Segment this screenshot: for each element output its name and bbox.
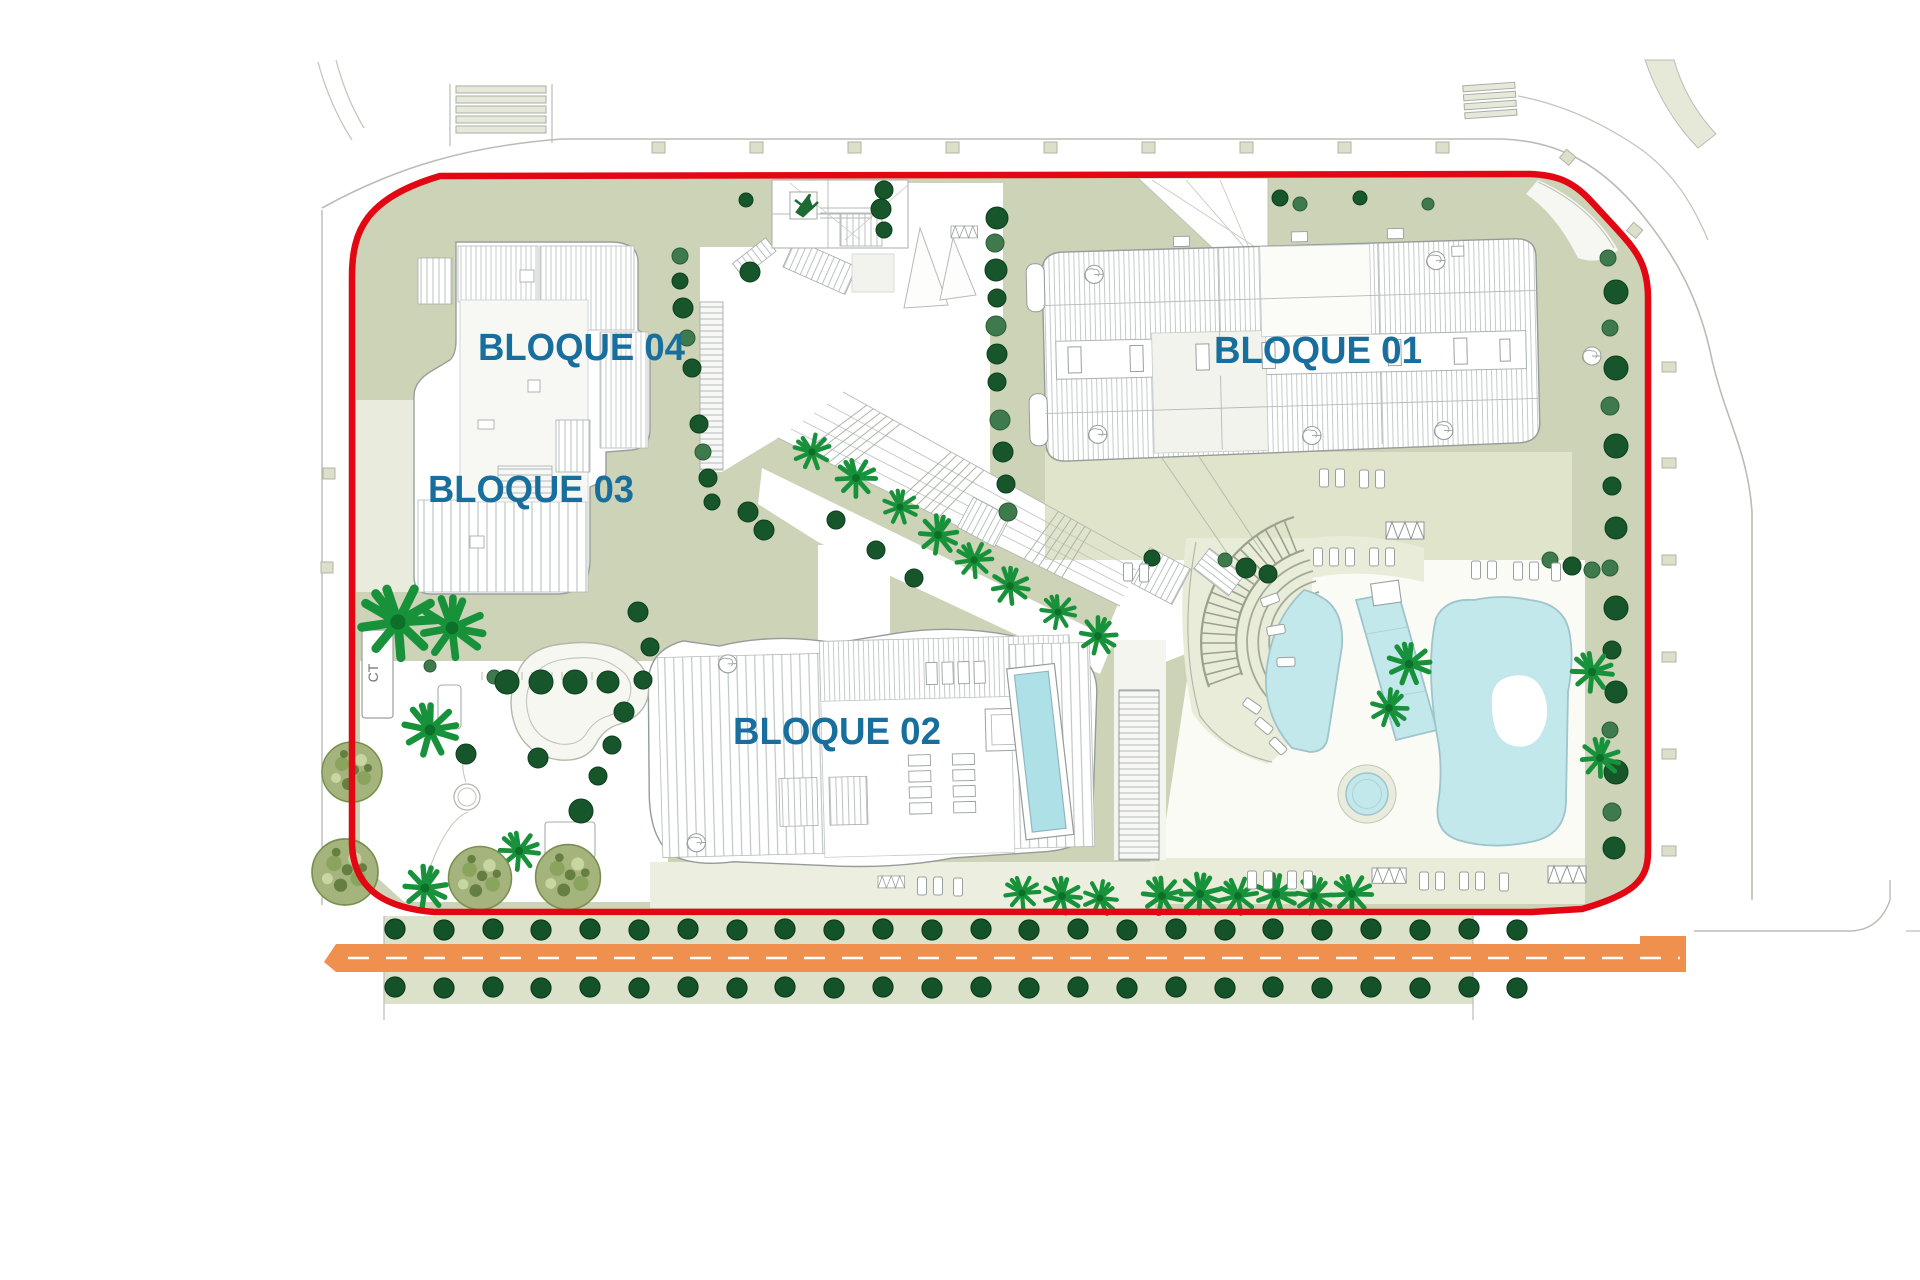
svg-text:BLOQUE 02: BLOQUE 02 [733, 711, 941, 753]
svg-text:CT: CT [365, 663, 381, 682]
svg-text:BLOQUE 04: BLOQUE 04 [478, 327, 685, 369]
svg-text:BLOQUE 03: BLOQUE 03 [428, 469, 634, 511]
svg-text:BLOQUE 01: BLOQUE 01 [1214, 330, 1422, 372]
